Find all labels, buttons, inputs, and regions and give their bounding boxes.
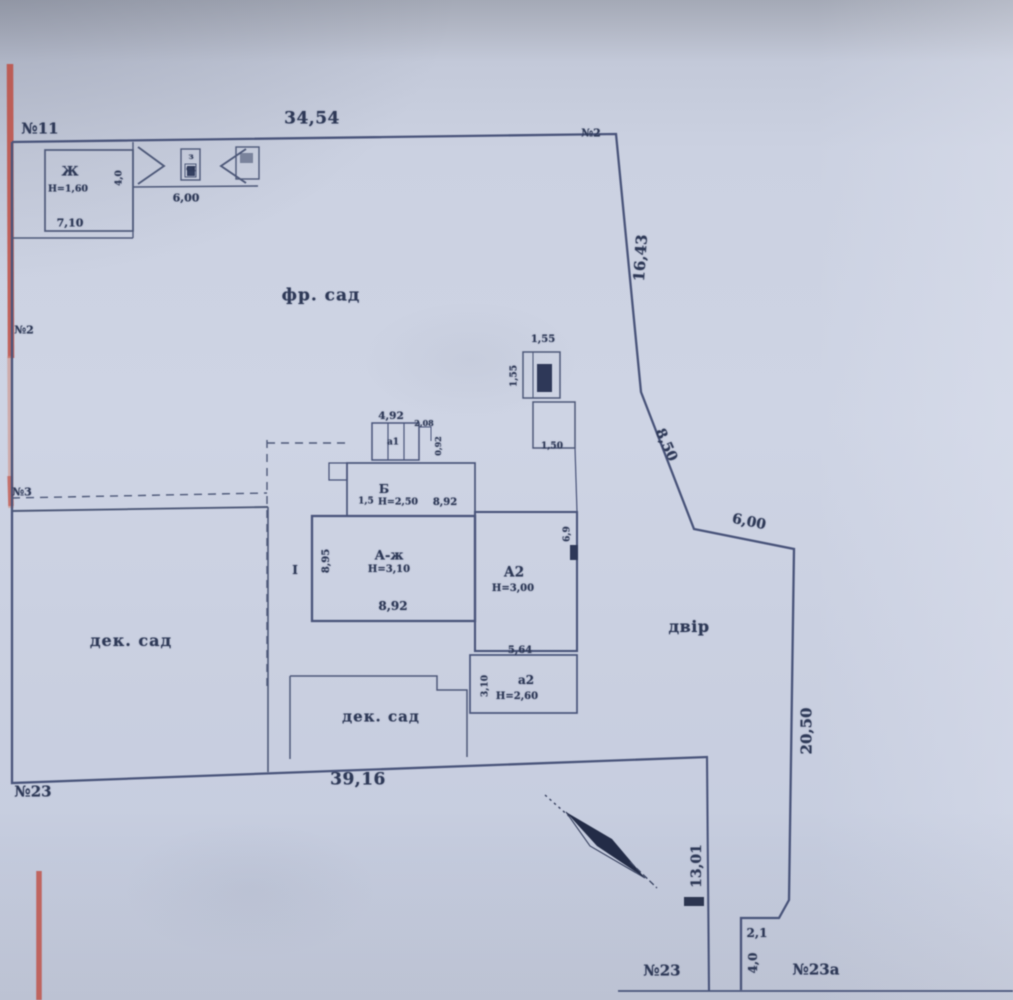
dim-boundary-right-lower: 20,50 — [800, 708, 815, 755]
area-middle-garden: дек. сад — [342, 710, 420, 725]
red-marker-lines — [10, 64, 39, 1000]
dim-notch-width: 2,1 — [747, 927, 768, 939]
annex-label: А2 — [504, 566, 524, 580]
annex-height: Н=3,00 — [492, 584, 534, 594]
porch-label: а1 — [387, 439, 399, 448]
area-front-garden: фр. сад — [282, 288, 361, 305]
well-width: 1,55 — [531, 335, 555, 345]
veranda-label: Б — [379, 483, 389, 495]
house-main-height: Н=3,10 — [368, 565, 410, 575]
porch-step-depth: 0,92 — [434, 436, 442, 455]
dim-boundary-top: 34,54 — [284, 111, 340, 128]
summer-kitchen-height: Н=2,60 — [496, 692, 538, 702]
well-shaft-fill — [537, 364, 552, 392]
porch-step — [419, 427, 431, 441]
well-depth: 1,55 — [511, 365, 520, 387]
neighbor-plot-bottom-left: №23 — [14, 785, 51, 800]
plan-drawing-layer: №11 №2 №2 №3 №23 №23 №23а 34,54 16,43 8,… — [0, 0, 1013, 1000]
neighbor-plot-left-upper: №2 — [14, 325, 34, 336]
site-plan-photo: №11 №2 №2 №3 №23 №23 №23а 34,54 16,43 8,… — [0, 0, 1013, 1000]
area-left-garden: дек. сад — [90, 633, 172, 649]
gate-post-label-top: з — [188, 152, 193, 160]
section-mark: І — [292, 564, 298, 576]
annex-door-marker — [570, 545, 578, 560]
dim-boundary-right-upper: 16,43 — [632, 234, 650, 282]
annex-width: 5,64 — [508, 646, 532, 656]
shed-label: Ж — [61, 166, 78, 179]
summer-kitchen-label: а2 — [518, 674, 534, 686]
neighbor-plot-left-lower: №3 — [12, 487, 32, 498]
dim-boundary-bottom: 39,16 — [330, 772, 386, 789]
neighbor-plot-top-left: №11 — [21, 122, 58, 137]
porch-width: 4,92 — [378, 411, 404, 422]
well-lower-width: 1,50 — [541, 443, 563, 452]
house-main-depth: 8,95 — [322, 549, 332, 573]
veranda-left-dim: 1,5 — [358, 498, 374, 507]
gate-width: 6,00 — [173, 193, 200, 204]
north-arrow-icon — [545, 795, 657, 888]
summer-kitchen-depth: 3,10 — [482, 675, 491, 697]
shed-depth: 4,0 — [116, 170, 125, 186]
street-plot-number-left: №23 — [643, 964, 680, 979]
gate-leaf-left — [138, 147, 164, 184]
house-main-width: 8,92 — [378, 600, 407, 612]
gate-post-label-bottom: сх — [186, 164, 196, 172]
house-main-label: А-ж — [374, 550, 403, 563]
porch-step-width: 2,08 — [414, 419, 433, 427]
shed-height: Н=1,60 — [48, 184, 88, 194]
veranda-outline — [347, 463, 475, 516]
annex-depth: 6,9 — [564, 526, 573, 542]
veranda-width: 8,92 — [433, 498, 457, 508]
dim-driveway: 13,01 — [690, 844, 704, 888]
plot-boundary — [12, 134, 1013, 991]
dim-notch-depth: 4,0 — [747, 953, 759, 974]
shed-width: 7,10 — [57, 218, 84, 229]
veranda-height: Н=2,50 — [378, 497, 418, 507]
house-outline — [312, 423, 577, 713]
neighbor-plot-top-right: №2 — [581, 128, 601, 139]
boundary-corner-marker — [684, 897, 704, 906]
plan-linework — [0, 0, 1013, 1000]
driveway-line — [707, 757, 709, 991]
area-yard: двір — [668, 619, 709, 635]
street-plot-number-right: №23а — [793, 963, 840, 978]
